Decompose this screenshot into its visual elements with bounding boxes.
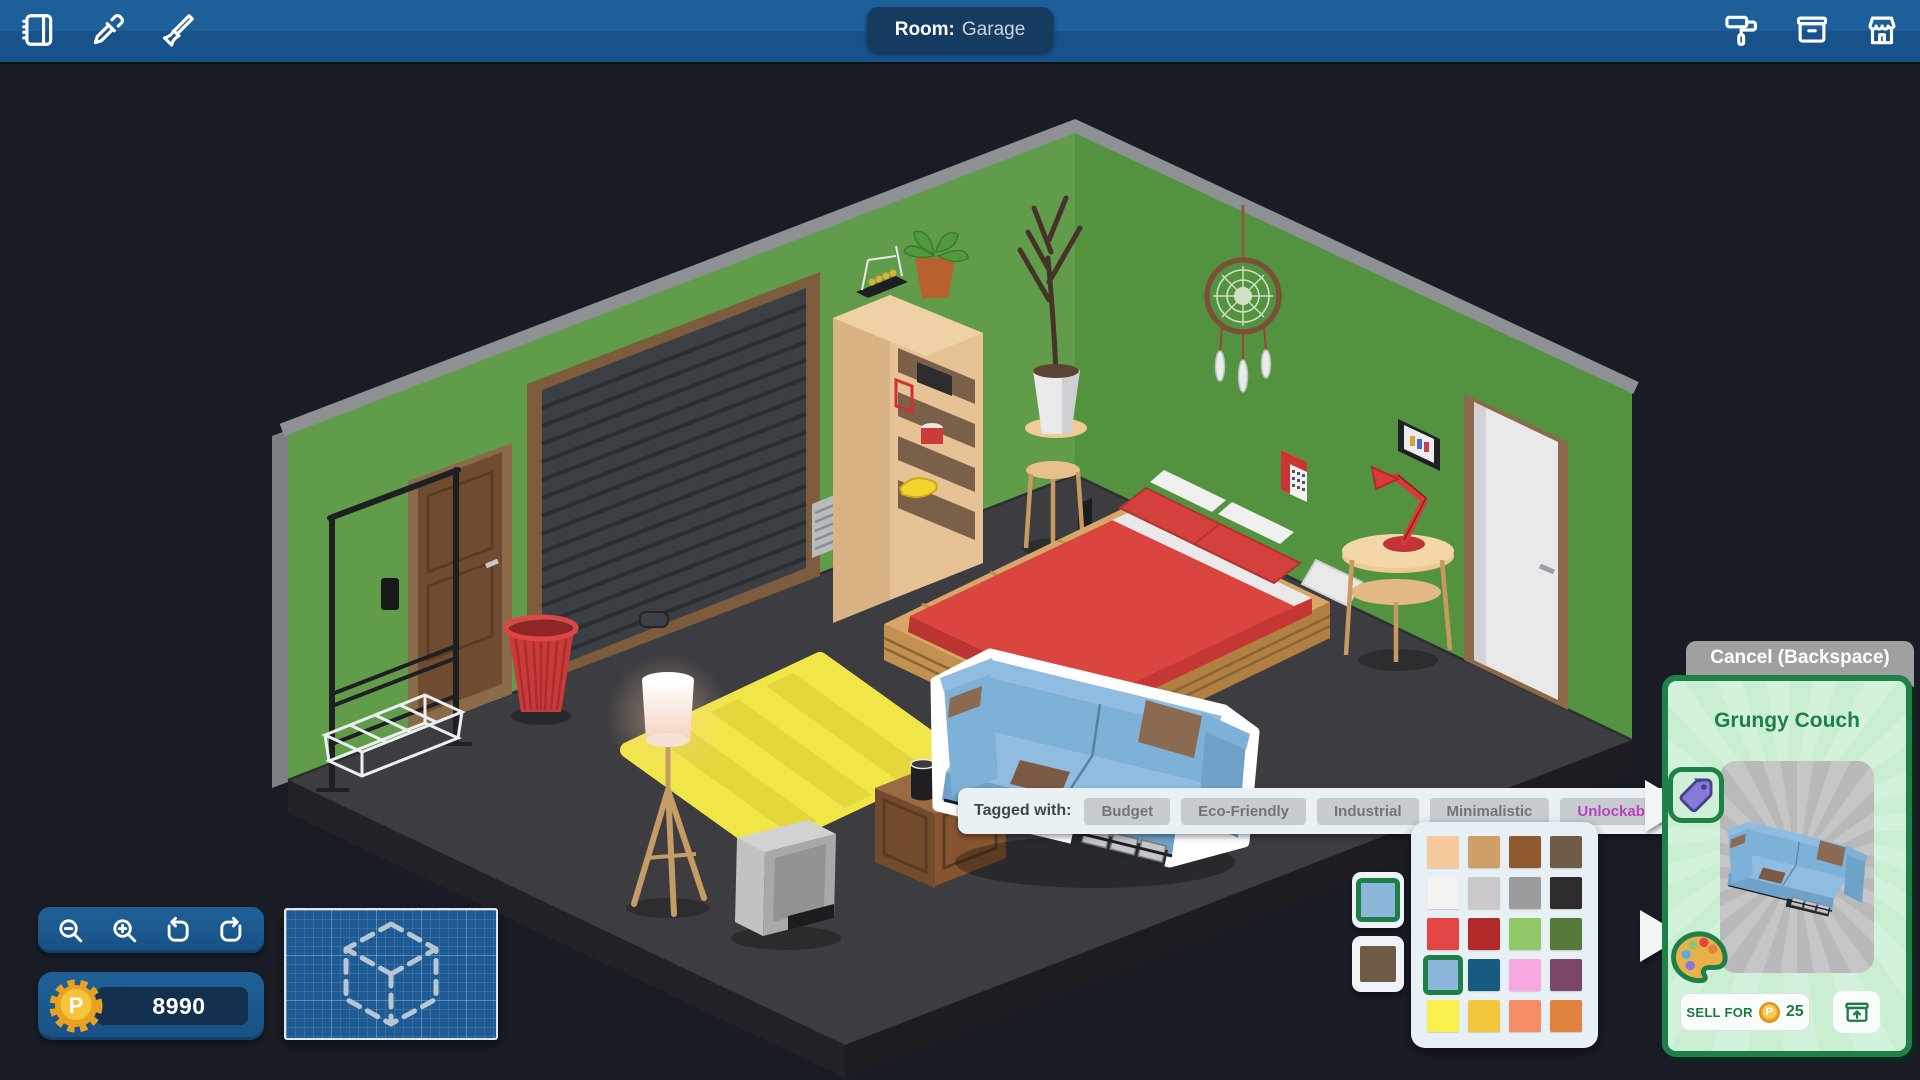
rotate-ccw-button[interactable] bbox=[156, 908, 200, 952]
camera-toolbar bbox=[38, 907, 264, 953]
eyedropper-button[interactable] bbox=[86, 8, 130, 52]
recolor-badge[interactable] bbox=[1666, 927, 1732, 993]
door-brown[interactable] bbox=[408, 443, 512, 734]
sell-button[interactable]: SELL FOR P 25 bbox=[1680, 993, 1810, 1031]
color-swatch-2[interactable] bbox=[1509, 836, 1541, 868]
paintbrush-button[interactable] bbox=[156, 8, 200, 52]
paint-roller-button[interactable] bbox=[1720, 8, 1764, 52]
tag-minimalistic: Minimalistic bbox=[1430, 798, 1550, 825]
color-swatch-10[interactable] bbox=[1509, 918, 1541, 950]
tag-tooltip-label: Tagged with: bbox=[974, 802, 1071, 820]
tag-icon bbox=[1677, 776, 1715, 814]
zoom-out-button[interactable] bbox=[49, 908, 93, 952]
color-swatch-4[interactable] bbox=[1427, 877, 1459, 909]
room-name: Garage bbox=[962, 19, 1025, 41]
currency-value: 8990 bbox=[138, 993, 205, 1020]
storage-box-icon bbox=[1793, 11, 1831, 49]
color-swatch-7[interactable] bbox=[1550, 877, 1582, 909]
storage-button[interactable] bbox=[1790, 8, 1834, 52]
color-swatch-15[interactable] bbox=[1550, 959, 1582, 991]
tag-list: BudgetEco-FriendlyIndustrialMinimalistic… bbox=[1084, 798, 1682, 825]
color-swatch-14[interactable] bbox=[1509, 959, 1541, 991]
color-swatch-12[interactable] bbox=[1427, 959, 1459, 991]
material-slot-1[interactable] bbox=[1352, 872, 1404, 928]
material-slot-2[interactable] bbox=[1352, 936, 1404, 992]
color-palette bbox=[1411, 822, 1598, 1048]
eyedropper-icon bbox=[89, 11, 127, 49]
red-tin bbox=[921, 428, 943, 444]
shop-button[interactable] bbox=[1860, 8, 1904, 52]
color-swatch-18[interactable] bbox=[1509, 1000, 1541, 1032]
door-white[interactable] bbox=[1464, 393, 1568, 710]
currency-coin-icon: P bbox=[48, 978, 104, 1034]
tag-industrial: Industrial bbox=[1317, 798, 1419, 825]
item-name: Grungy Couch bbox=[1668, 709, 1906, 733]
zoom-in-icon bbox=[109, 915, 140, 946]
shop-icon bbox=[1863, 11, 1901, 49]
rotate-cw-icon bbox=[216, 915, 247, 946]
color-swatch-9[interactable] bbox=[1468, 918, 1500, 950]
paint-roller-icon bbox=[1723, 11, 1761, 49]
sell-price: 25 bbox=[1786, 1003, 1804, 1021]
item-preview-card bbox=[1720, 761, 1874, 973]
speaker bbox=[911, 760, 935, 801]
game-stage: Room: Garage Tagged with: bbox=[0, 0, 1920, 1080]
palette-icon bbox=[1666, 927, 1732, 993]
svg-text:P: P bbox=[69, 993, 84, 1018]
crt-tv[interactable] bbox=[731, 820, 841, 950]
zoom-in-button[interactable] bbox=[102, 908, 146, 952]
color-swatch-0[interactable] bbox=[1427, 836, 1459, 868]
currency-display: 8990 P bbox=[38, 972, 264, 1040]
sell-label: SELL FOR bbox=[1686, 1005, 1752, 1020]
room-label: Room: bbox=[895, 19, 955, 41]
top-bar: Room: Garage bbox=[0, 0, 1920, 64]
tags-badge[interactable] bbox=[1668, 767, 1724, 823]
catalog-icon bbox=[19, 11, 57, 49]
item-preview-image bbox=[1722, 813, 1872, 921]
color-swatch-13[interactable] bbox=[1468, 959, 1500, 991]
color-swatch-8[interactable] bbox=[1427, 918, 1459, 950]
color-swatch-6[interactable] bbox=[1509, 877, 1541, 909]
color-swatch-17[interactable] bbox=[1468, 1000, 1500, 1032]
minimap-blueprint[interactable] bbox=[284, 908, 498, 1040]
garage-door-handle bbox=[640, 612, 668, 627]
color-swatch-19[interactable] bbox=[1550, 1000, 1582, 1032]
tag-eco-friendly: Eco-Friendly bbox=[1181, 798, 1306, 825]
color-swatch-1[interactable] bbox=[1468, 836, 1500, 868]
color-swatch-3[interactable] bbox=[1550, 836, 1582, 868]
color-swatch-16[interactable] bbox=[1427, 1000, 1459, 1032]
light-switch[interactable] bbox=[381, 578, 399, 610]
minimap-cube-icon bbox=[331, 918, 451, 1030]
room-title: Room: Garage bbox=[867, 7, 1054, 53]
put-away-icon bbox=[1843, 998, 1871, 1026]
material-slot-2-color bbox=[1360, 946, 1396, 982]
rotate-cw-button[interactable] bbox=[209, 908, 253, 952]
color-swatch-11[interactable] bbox=[1550, 918, 1582, 950]
color-swatch-5[interactable] bbox=[1468, 877, 1500, 909]
tag-budget: Budget bbox=[1084, 798, 1170, 825]
item-panel: Grungy Couch SELL FOR P 25 bbox=[1662, 675, 1912, 1057]
coin-icon: P bbox=[1759, 1002, 1780, 1023]
paintbrush-icon bbox=[159, 11, 197, 49]
material-slot-1-color bbox=[1360, 882, 1396, 918]
zoom-out-icon bbox=[55, 915, 86, 946]
catalog-button[interactable] bbox=[16, 8, 60, 52]
rotate-ccw-icon bbox=[162, 915, 193, 946]
store-item-button[interactable] bbox=[1833, 991, 1880, 1033]
